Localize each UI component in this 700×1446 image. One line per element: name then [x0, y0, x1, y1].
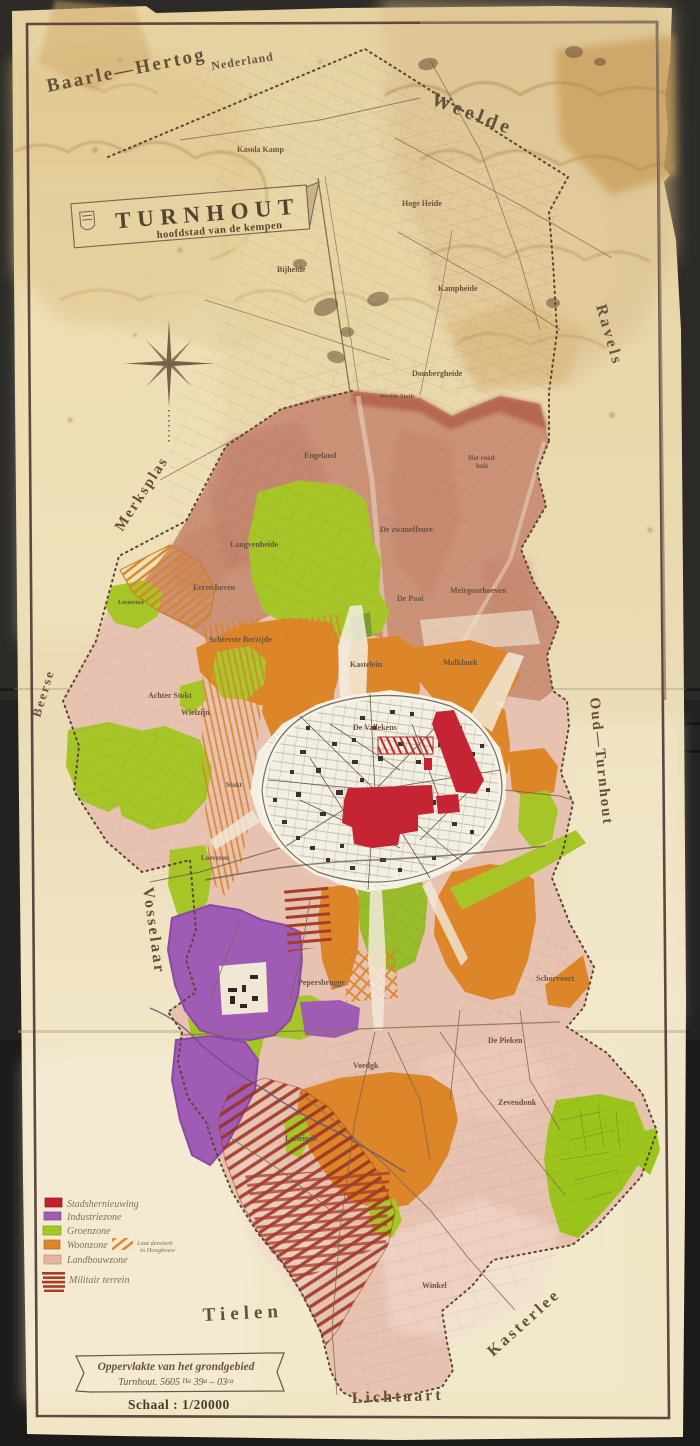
svg-text:Achterste Berzijde: Achterste Berzijde: [208, 635, 272, 644]
svg-text:Stokt: Stokt: [226, 781, 243, 789]
svg-text:Groenzone: Groenzone: [67, 1226, 111, 1237]
svg-text:Het rood: Het rood: [468, 454, 495, 462]
svg-text:Loeveren: Loeveren: [201, 854, 229, 862]
svg-text:Meirgoorhoeven: Meirgoorhoeven: [450, 586, 507, 595]
svg-text:Malkhoek: Malkhoek: [443, 658, 478, 667]
svg-text:Bijheide: Bijheide: [277, 265, 306, 274]
svg-text:Kampheide: Kampheide: [438, 284, 478, 293]
svg-text:Loemeind: Loemeind: [118, 600, 144, 606]
svg-text:De Paai: De Paai: [397, 594, 424, 603]
svg-text:Eertschoven: Eertschoven: [193, 583, 236, 592]
svg-text:Hoge Heide: Hoge Heide: [402, 199, 442, 208]
svg-text:Dombergheide: Dombergheide: [412, 369, 463, 378]
svg-text:Langvenheide: Langvenheide: [230, 540, 278, 549]
svg-text:Kastelein: Kastelein: [350, 660, 383, 669]
svg-text:in Hoogbouw: in Hoogbouw: [140, 1247, 176, 1254]
svg-text:De Pieken: De Pieken: [488, 1036, 523, 1045]
svg-text:Tielen: Tielen: [202, 1301, 283, 1326]
svg-text:Militair terrein: Militair terrein: [68, 1275, 129, 1286]
svg-text:Engeland: Engeland: [304, 451, 337, 460]
svg-text:Pepersbrugge: Pepersbrugge: [298, 978, 346, 987]
svg-text:Lichtaart: Lichtaart: [352, 1387, 444, 1407]
svg-text:Winkel: Winkel: [422, 1281, 448, 1290]
svg-text:Industriezone: Industriezone: [66, 1212, 122, 1223]
svg-text:De zwaneffeure: De zwaneffeure: [380, 525, 433, 534]
svg-text:Leiseinde: Leiseinde: [285, 1134, 318, 1143]
svg-text:Woonzone: Woonzone: [67, 1240, 108, 1251]
svg-text:Turnhout. 5605 Ha 39a – 03ca: Turnhout. 5605 Ha 39a – 03ca: [118, 1377, 234, 1388]
svg-text:Zevendonk: Zevendonk: [498, 1098, 537, 1107]
svg-text:Weelde Statie: Weelde Statie: [380, 394, 415, 400]
svg-text:Schorvoort: Schorvoort: [536, 974, 575, 983]
svg-text:Landbouwzone: Landbouwzone: [66, 1255, 128, 1266]
svg-text:De Vallekens: De Vallekens: [353, 723, 397, 732]
svg-text:Laat densiteit: Laat densiteit: [136, 1240, 173, 1247]
svg-text:huis: huis: [476, 462, 489, 470]
svg-text:Wielzijn: Wielzijn: [181, 708, 210, 717]
svg-text:Voedgk: Voedgk: [353, 1061, 379, 1070]
svg-text:Achter Stokt: Achter Stokt: [148, 691, 192, 700]
svg-text:Oppervlakte van het grondgebie: Oppervlakte van het grondgebied: [98, 1361, 255, 1373]
svg-text:Kasola Kamp: Kasola Kamp: [237, 145, 284, 154]
svg-text:Schaal : 1/20000: Schaal : 1/20000: [128, 1397, 230, 1412]
svg-text:Stadshernieuwing: Stadshernieuwing: [67, 1199, 139, 1210]
